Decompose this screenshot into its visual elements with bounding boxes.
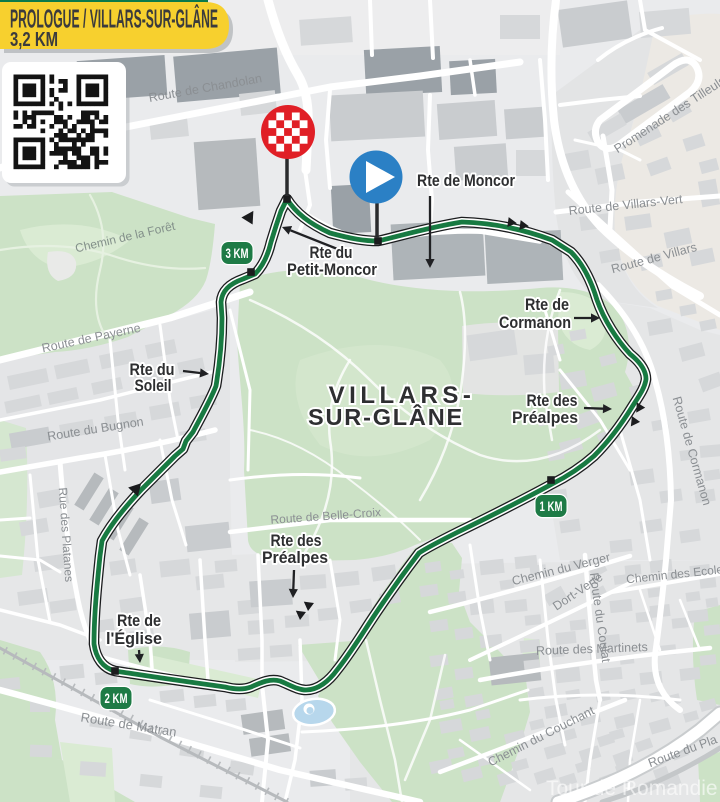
svg-text:3 KM: 3 KM [226, 245, 249, 261]
svg-text:Rte de: Rte de [525, 295, 569, 314]
svg-text:Rte de: Rte de [117, 611, 161, 630]
svg-text:Préalpes: Préalpes [262, 548, 328, 567]
svg-text:3,2 KM: 3,2 KM [10, 29, 58, 51]
svg-text:1 KM: 1 KM [540, 498, 563, 514]
svg-text:Soleil: Soleil [135, 376, 172, 395]
svg-text:Rte de Moncor: Rte de Moncor [417, 171, 515, 190]
svg-text:Cormanon: Cormanon [499, 313, 571, 332]
svg-text:2 KM: 2 KM [105, 690, 128, 706]
svg-text:l'Église: l'Église [106, 629, 162, 648]
svg-text:Tour de Romandie: Tour de Romandie [546, 777, 718, 800]
svg-text:SUR-GLÂNE: SUR-GLÂNE [308, 403, 464, 430]
svg-text:Petit-Moncor: Petit-Moncor [287, 260, 377, 279]
svg-text:Préalpes: Préalpes [512, 408, 578, 427]
